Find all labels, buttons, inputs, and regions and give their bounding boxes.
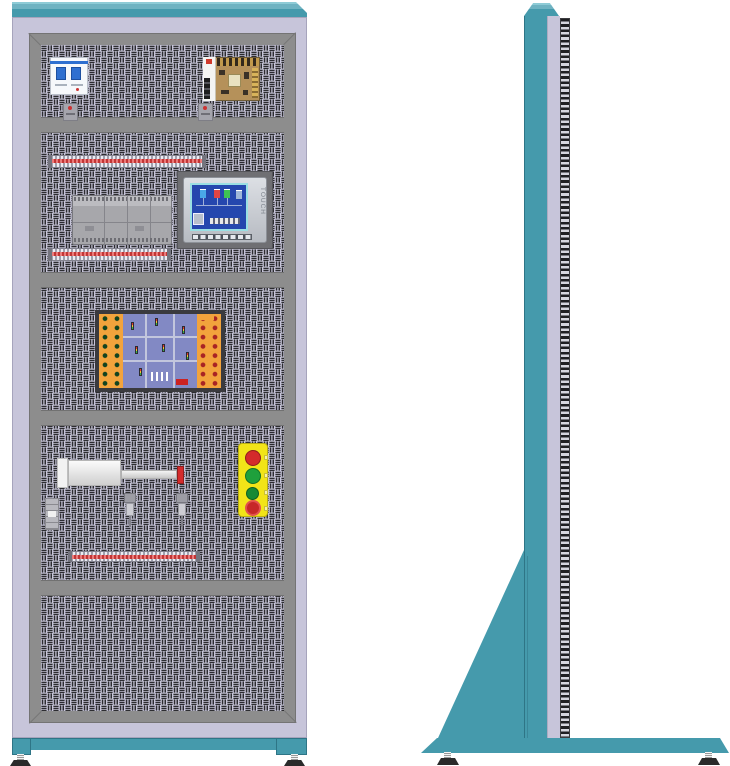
psu-terminals (204, 78, 210, 99)
traffic-signal (162, 344, 165, 352)
plc-terminal-row (74, 238, 170, 242)
panel-divider-3 (41, 410, 284, 426)
button-label-tab (264, 473, 268, 478)
rail-end-stop (167, 248, 171, 261)
psu-component (219, 70, 225, 75)
button-label-tab (264, 506, 268, 511)
psu-heatsink (252, 68, 258, 98)
screen-tank-green (224, 189, 230, 198)
cylinder-rod-tip (177, 466, 184, 484)
breaker-label-line (55, 84, 67, 86)
plc-tab (85, 226, 94, 231)
board-jack-strip-red (197, 314, 221, 388)
psu-capacitor-row (217, 58, 259, 66)
screen-tank-gray (236, 190, 242, 199)
sensor-body (178, 503, 186, 516)
screen-machine-box (193, 213, 204, 225)
cylinder-rod (121, 470, 177, 479)
side-frame-strip (547, 16, 560, 738)
technical-illustration: TOUCH (0, 0, 730, 766)
mini-valve (45, 498, 59, 530)
rail-end-stop (48, 155, 52, 168)
board-red-label (176, 379, 188, 385)
button-label-tab (264, 455, 268, 460)
hmi-function-keys (192, 234, 252, 240)
board-jack-strip-green (99, 314, 123, 388)
front-base-leg-right (276, 738, 307, 755)
psu-transformer (228, 74, 241, 87)
plc-terminal-row (74, 197, 170, 201)
hmi-touch-label: TOUCH (256, 184, 266, 218)
screen-tank-red (214, 189, 220, 198)
proximity-sensor-2 (176, 493, 188, 503)
din-terminal-rail-1 (48, 155, 206, 168)
side-top-cap (524, 3, 559, 16)
board-crosswalk (151, 372, 171, 381)
rail-end-stop (202, 155, 206, 168)
leveling-foot-stem (17, 754, 24, 760)
traffic-signal (155, 318, 158, 326)
board-road (123, 336, 197, 338)
rail-terminal-strip (72, 555, 196, 559)
plc-tab (135, 226, 144, 231)
breaker-blue-band (50, 61, 88, 64)
psu-component (244, 72, 249, 79)
red-push-button (245, 450, 261, 466)
rail-end-stop (196, 551, 200, 562)
board-corner-mark (200, 315, 214, 320)
traffic-signal (186, 352, 189, 360)
rail-end-stop (68, 551, 72, 562)
front-base-leg-left (12, 738, 31, 755)
screen-tank-blue (200, 189, 206, 198)
button-label-tab (264, 490, 268, 495)
leveling-foot-pad (284, 760, 305, 766)
screen-pipe (217, 198, 218, 206)
emergency-stop-button (245, 500, 261, 516)
pneumatic-cylinder (68, 460, 121, 486)
traffic-signal (135, 346, 138, 354)
board-road (145, 314, 147, 388)
board-road (123, 360, 197, 362)
leveling-foot-pad (437, 758, 459, 765)
side-perforated-edge (560, 18, 570, 738)
rail-end-stop (48, 248, 52, 261)
panel-divider-2 (41, 272, 284, 288)
din-terminal-rail-2 (48, 248, 171, 261)
psu-component (221, 90, 229, 94)
din-terminal-rail-3 (68, 551, 200, 562)
sensor-cable (129, 516, 131, 527)
breaker-toggle-2 (71, 67, 81, 80)
sensor-body (126, 503, 134, 516)
psu-logo (206, 59, 212, 64)
sensor-cable (181, 516, 183, 527)
rail-terminal-strip (52, 252, 167, 256)
plc-seam (73, 222, 171, 223)
panel-divider-4 (41, 580, 284, 596)
leveling-foot-pad (10, 760, 31, 766)
terminal-block-right (198, 103, 213, 121)
proximity-sensor-1 (124, 493, 136, 503)
gusset-seam (527, 556, 528, 738)
side-support-gusset (438, 550, 524, 738)
screen-conveyor (210, 218, 240, 224)
screen-pipe (227, 198, 228, 206)
front-top-cap (12, 2, 307, 17)
screen-pipe (203, 198, 204, 206)
leveling-foot-stem (291, 754, 298, 760)
board-road (173, 314, 175, 388)
green-push-button-2 (246, 487, 259, 500)
leveling-foot-stem (705, 752, 712, 758)
rail-terminal-strip (52, 159, 202, 163)
side-base-plate (421, 738, 729, 753)
leveling-foot-stem (444, 752, 451, 758)
breaker-indicator (76, 88, 79, 91)
cylinder-flange (57, 458, 68, 488)
breaker-toggle-1 (56, 67, 66, 80)
psu-component (243, 90, 248, 95)
green-push-button-1 (245, 468, 261, 484)
terminal-block-left (63, 103, 78, 121)
breaker-label-line (71, 84, 83, 86)
leveling-foot-pad (698, 758, 720, 765)
traffic-signal (182, 326, 185, 334)
traffic-signal (139, 368, 142, 376)
front-base-strip (12, 738, 307, 750)
traffic-signal (131, 322, 134, 330)
